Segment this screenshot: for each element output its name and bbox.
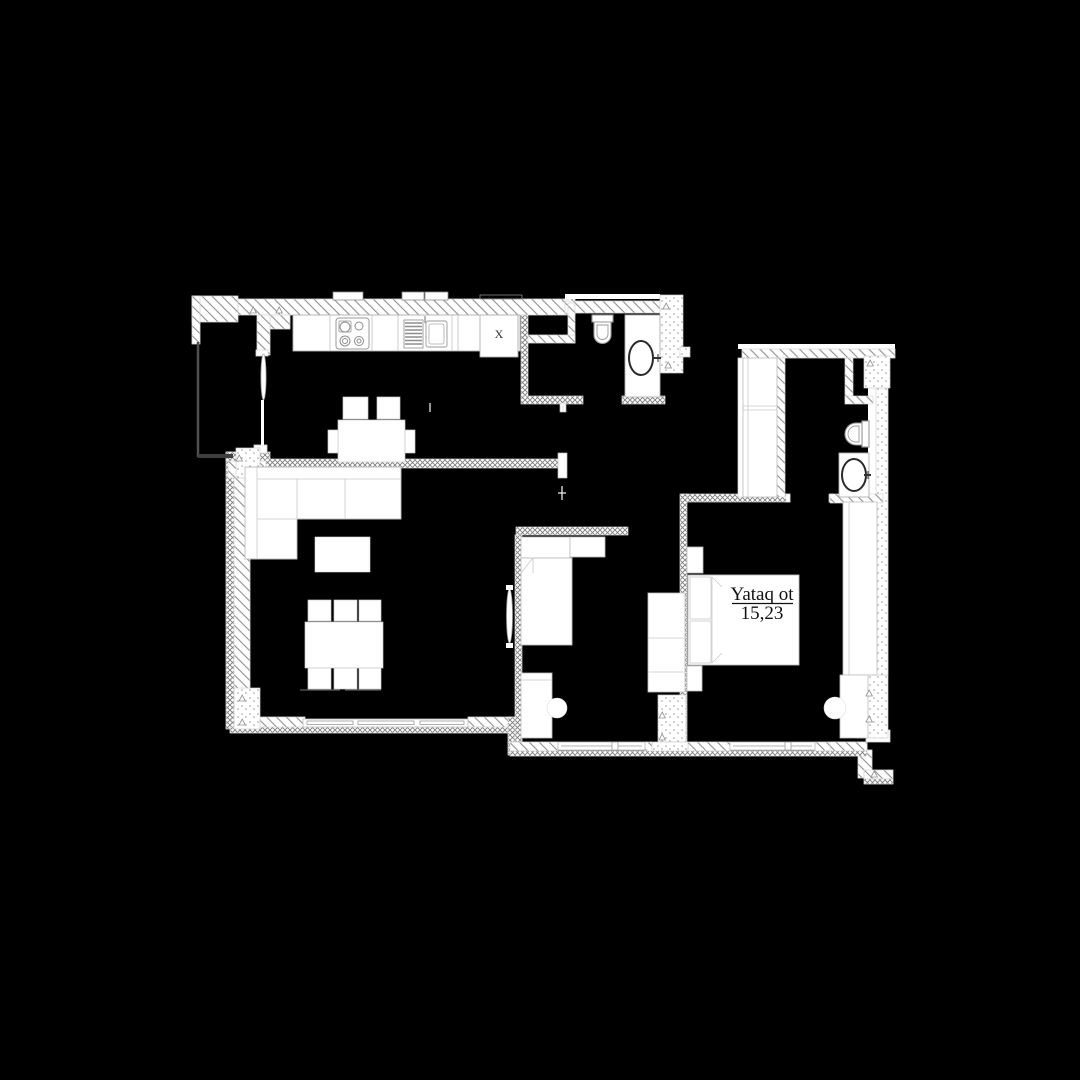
window-living-room [303,719,468,727]
pouf [824,697,846,719]
dining-chair [359,600,381,621]
toilet-2-icon [845,421,869,447]
floor-plan: X [0,0,1080,1080]
coffee-table [315,537,370,572]
child-wardrobe [648,593,685,692]
kitchen-chair [377,397,400,419]
balcony [198,342,233,456]
kitchen-chair [343,397,368,419]
dining-chair [308,600,331,621]
bedroom: Yataq ot 15,23 [687,502,877,738]
child-door-leaf [506,585,513,648]
dining-chair [334,668,357,689]
bathroom-2 [839,421,871,497]
dining-chair [334,600,357,621]
dining-chair [308,668,331,689]
nightstand [687,547,703,573]
dining-set [300,600,383,690]
upper-cabinets [333,292,522,300]
bedroom-area-label: 15,23 [741,603,784,624]
kitchen-table [338,420,405,462]
refrigerator-cell: X [480,315,518,357]
washbasin-2-icon [839,453,871,497]
living-room [245,467,401,690]
refrigerator-marker: X [495,327,504,341]
window-bedroom [730,742,815,750]
kitchen-table-set [328,397,415,462]
balcony-door-leaf [261,354,266,445]
dimension-ticks [430,403,566,500]
single-bed [521,558,572,645]
dining-table [305,622,383,668]
kitchen: X [261,292,522,462]
floor-plan-canvas: X [0,0,1080,1080]
kitchen-stool [405,430,415,453]
head-shelf [521,537,605,558]
columns [234,295,890,751]
toilet-icon [592,315,613,344]
kitchen-stool [328,430,338,453]
windows [303,719,815,750]
bathroom-1 [592,315,661,397]
balcony-outline [198,342,233,456]
nightstand [687,666,702,691]
closet-cabinet [743,358,777,497]
pillow [690,577,711,619]
washbasin-icon [625,315,661,397]
pillow [690,621,711,663]
desk-chair [547,698,567,718]
dining-chair [359,668,381,689]
bedroom-name-label: Yataq ot [731,584,795,605]
window-child-room [558,742,645,750]
